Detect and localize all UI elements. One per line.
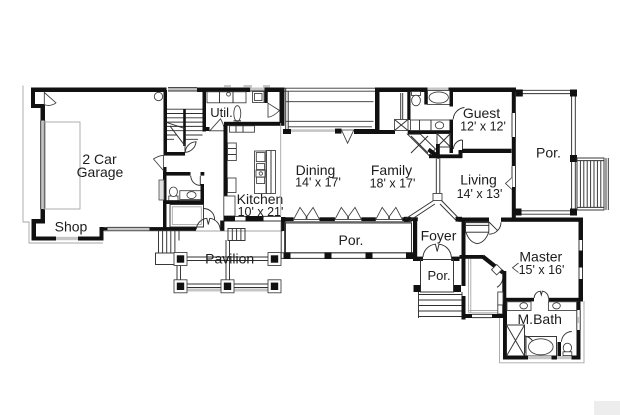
svg-text:14' x 13': 14' x 13'	[457, 187, 503, 201]
svg-text:18' x 17': 18' x 17'	[370, 176, 416, 190]
svg-text:14' x 17': 14' x 17'	[295, 175, 341, 189]
svg-text:12' x 12': 12' x 12'	[460, 119, 506, 133]
svg-text:10' x 21': 10' x 21'	[238, 205, 284, 219]
svg-text:Util.: Util.	[210, 105, 232, 120]
svg-text:Pavilion: Pavilion	[205, 251, 254, 267]
svg-text:Por.: Por.	[427, 268, 450, 283]
svg-text:15' x 16': 15' x 16'	[519, 263, 565, 277]
svg-text:Living: Living	[460, 172, 497, 188]
svg-text:Por.: Por.	[339, 232, 364, 248]
svg-text:Garage: Garage	[77, 164, 124, 180]
svg-text:Foyer: Foyer	[421, 227, 457, 243]
svg-text:Shop: Shop	[55, 219, 88, 235]
svg-text:Por.: Por.	[536, 145, 561, 161]
